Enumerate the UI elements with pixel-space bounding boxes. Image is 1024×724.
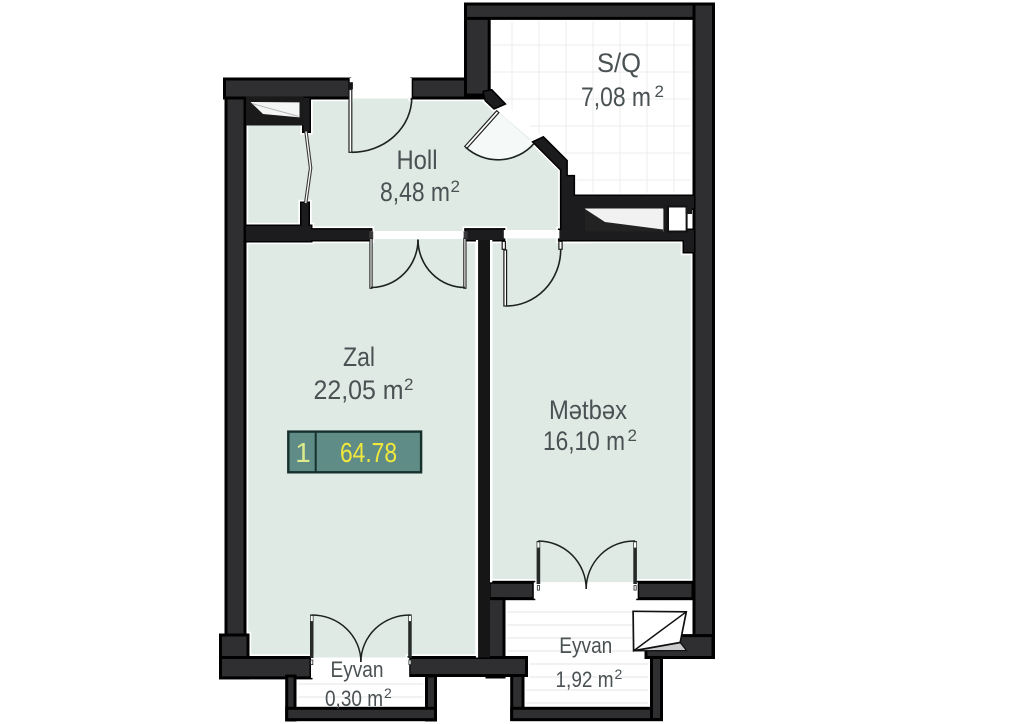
svg-text:8,48 m: 8,48 m (380, 177, 450, 207)
svg-text:2: 2 (615, 666, 623, 682)
svg-text:2: 2 (655, 82, 664, 101)
svg-text:22,05 m: 22,05 m (314, 375, 404, 405)
svg-text:Holl: Holl (397, 145, 438, 175)
svg-text:0,30 m: 0,30 m (325, 686, 383, 711)
svg-text:2: 2 (451, 177, 460, 196)
svg-text:1,92 m: 1,92 m (556, 667, 614, 692)
svg-text:2: 2 (404, 375, 413, 394)
svg-text:Mətbəx: Mətbəx (549, 395, 627, 425)
svg-text:1: 1 (295, 437, 311, 468)
svg-text:16,10 m: 16,10 m (543, 426, 625, 456)
svg-text:Eyvan: Eyvan (559, 633, 612, 658)
svg-text:2: 2 (628, 426, 637, 445)
svg-text:Zal: Zal (343, 342, 375, 372)
svg-text:64.78: 64.78 (340, 437, 397, 468)
svg-text:Eyvan: Eyvan (331, 657, 384, 682)
svg-text:2: 2 (384, 685, 392, 701)
svg-text:S/Q: S/Q (597, 48, 641, 78)
svg-text:7,08 m: 7,08 m (581, 82, 651, 112)
